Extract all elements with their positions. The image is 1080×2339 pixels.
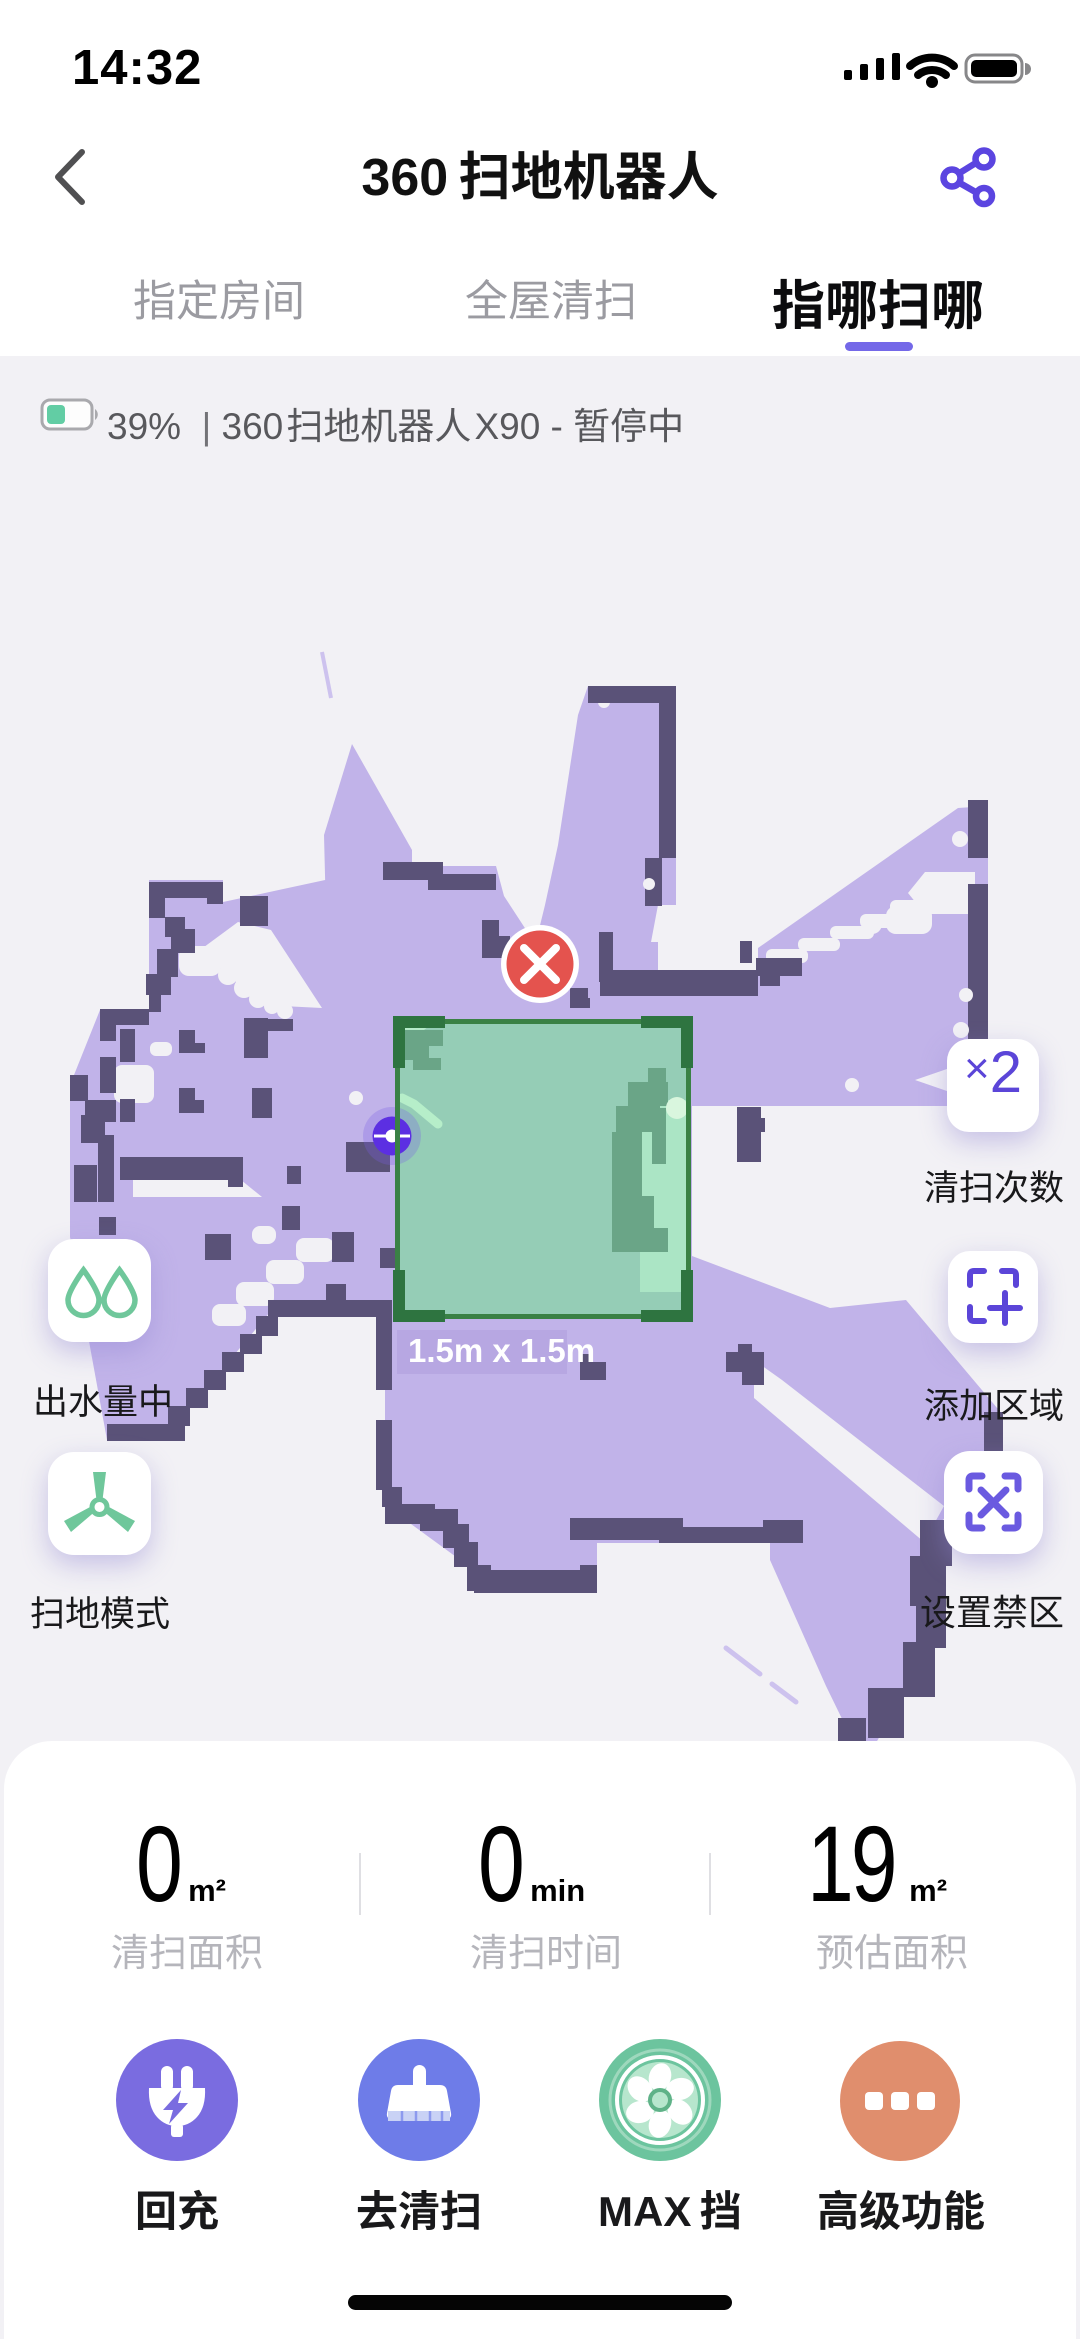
svg-text:1.5m x 1.5m: 1.5m x 1.5m xyxy=(408,1332,595,1369)
